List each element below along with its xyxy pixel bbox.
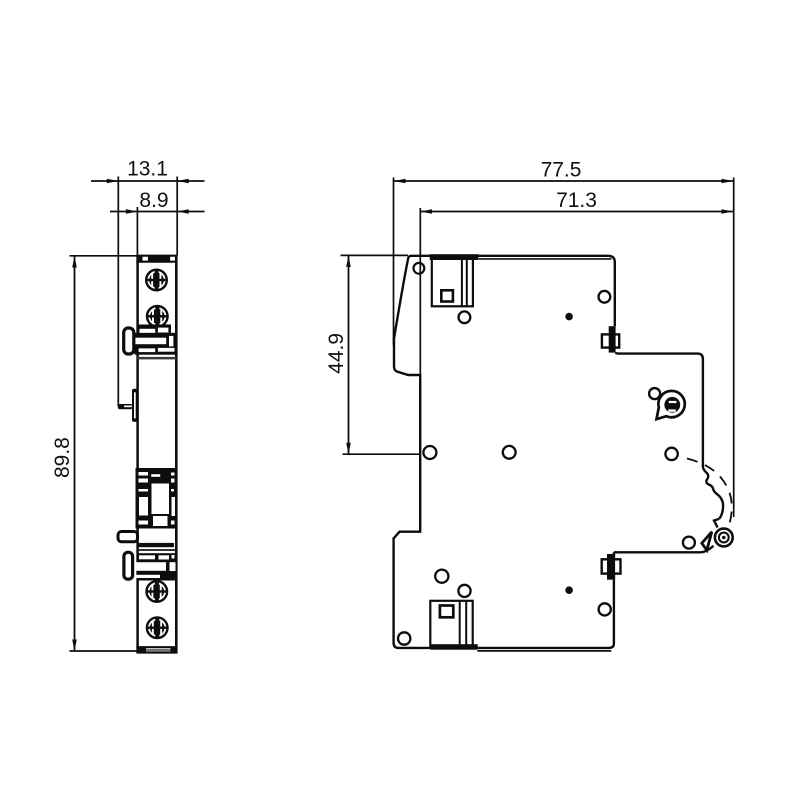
svg-text:8.9: 8.9 [139,189,168,212]
svg-text:71.3: 71.3 [556,189,597,212]
svg-text:13.1: 13.1 [127,158,168,181]
svg-text:77.5: 77.5 [541,159,582,182]
svg-text:44.9: 44.9 [325,333,348,374]
svg-text:89.8: 89.8 [51,437,74,478]
